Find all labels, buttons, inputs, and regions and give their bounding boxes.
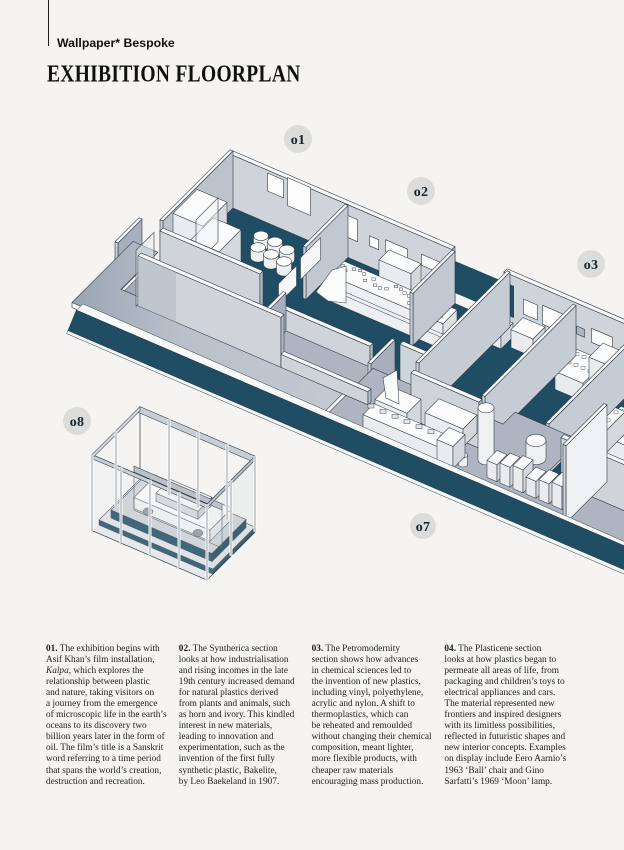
svg-text:o1: o1 (291, 133, 306, 148)
svg-text:o3: o3 (584, 258, 599, 273)
svg-text:o8: o8 (70, 415, 85, 430)
svg-text:o2: o2 (414, 185, 429, 200)
svg-text:o7: o7 (416, 520, 431, 535)
